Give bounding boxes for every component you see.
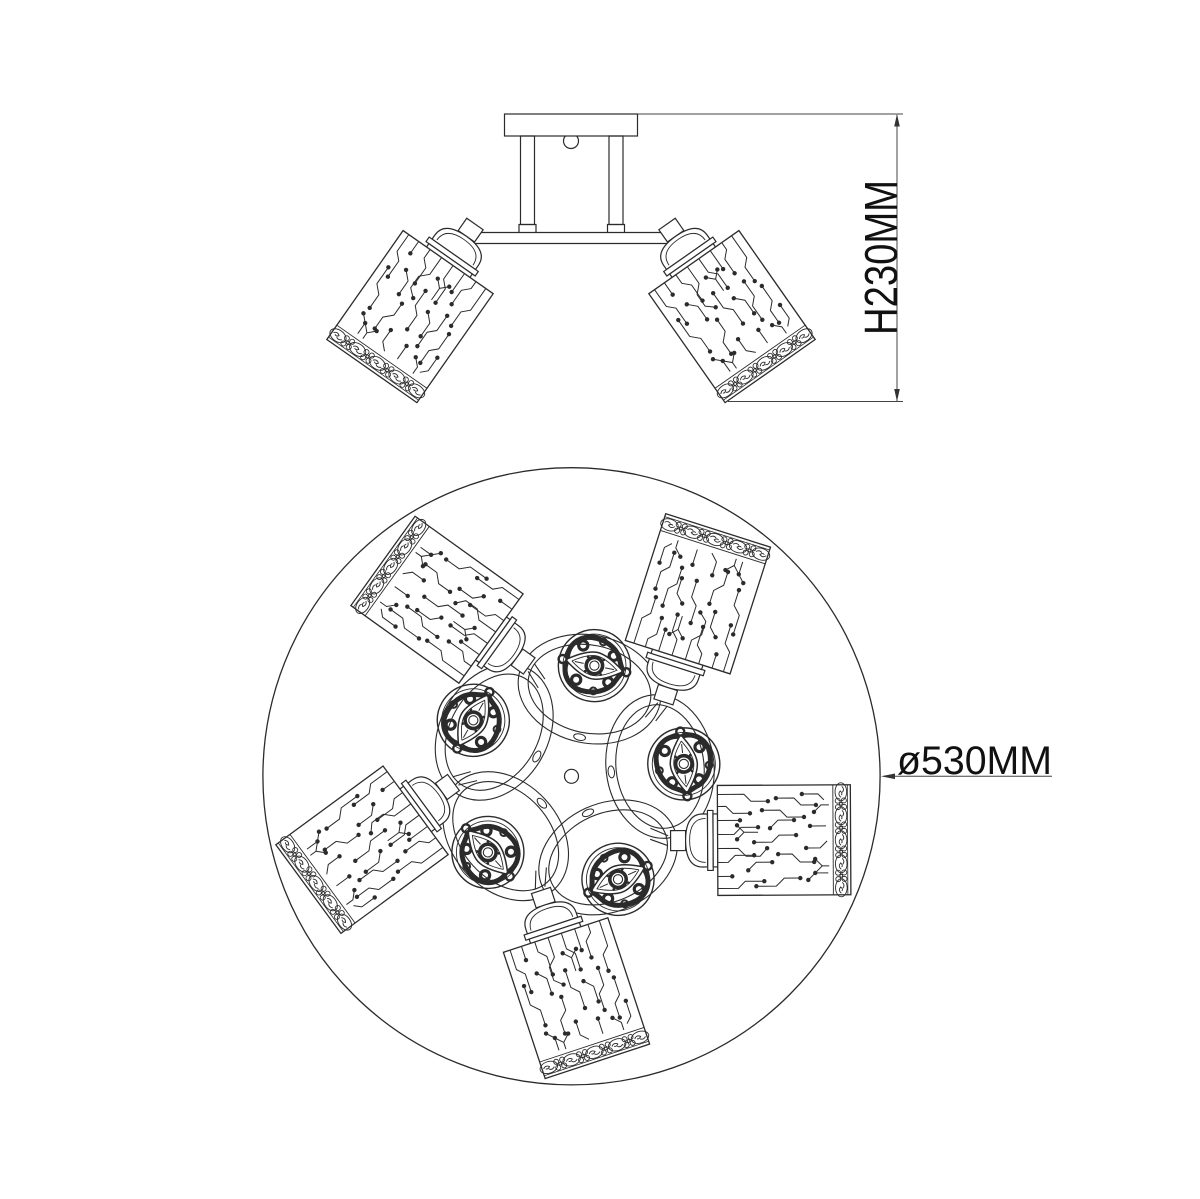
svg-text:ø530MM: ø530MM: [897, 739, 1052, 783]
svg-text:H230MM: H230MM: [855, 180, 907, 335]
